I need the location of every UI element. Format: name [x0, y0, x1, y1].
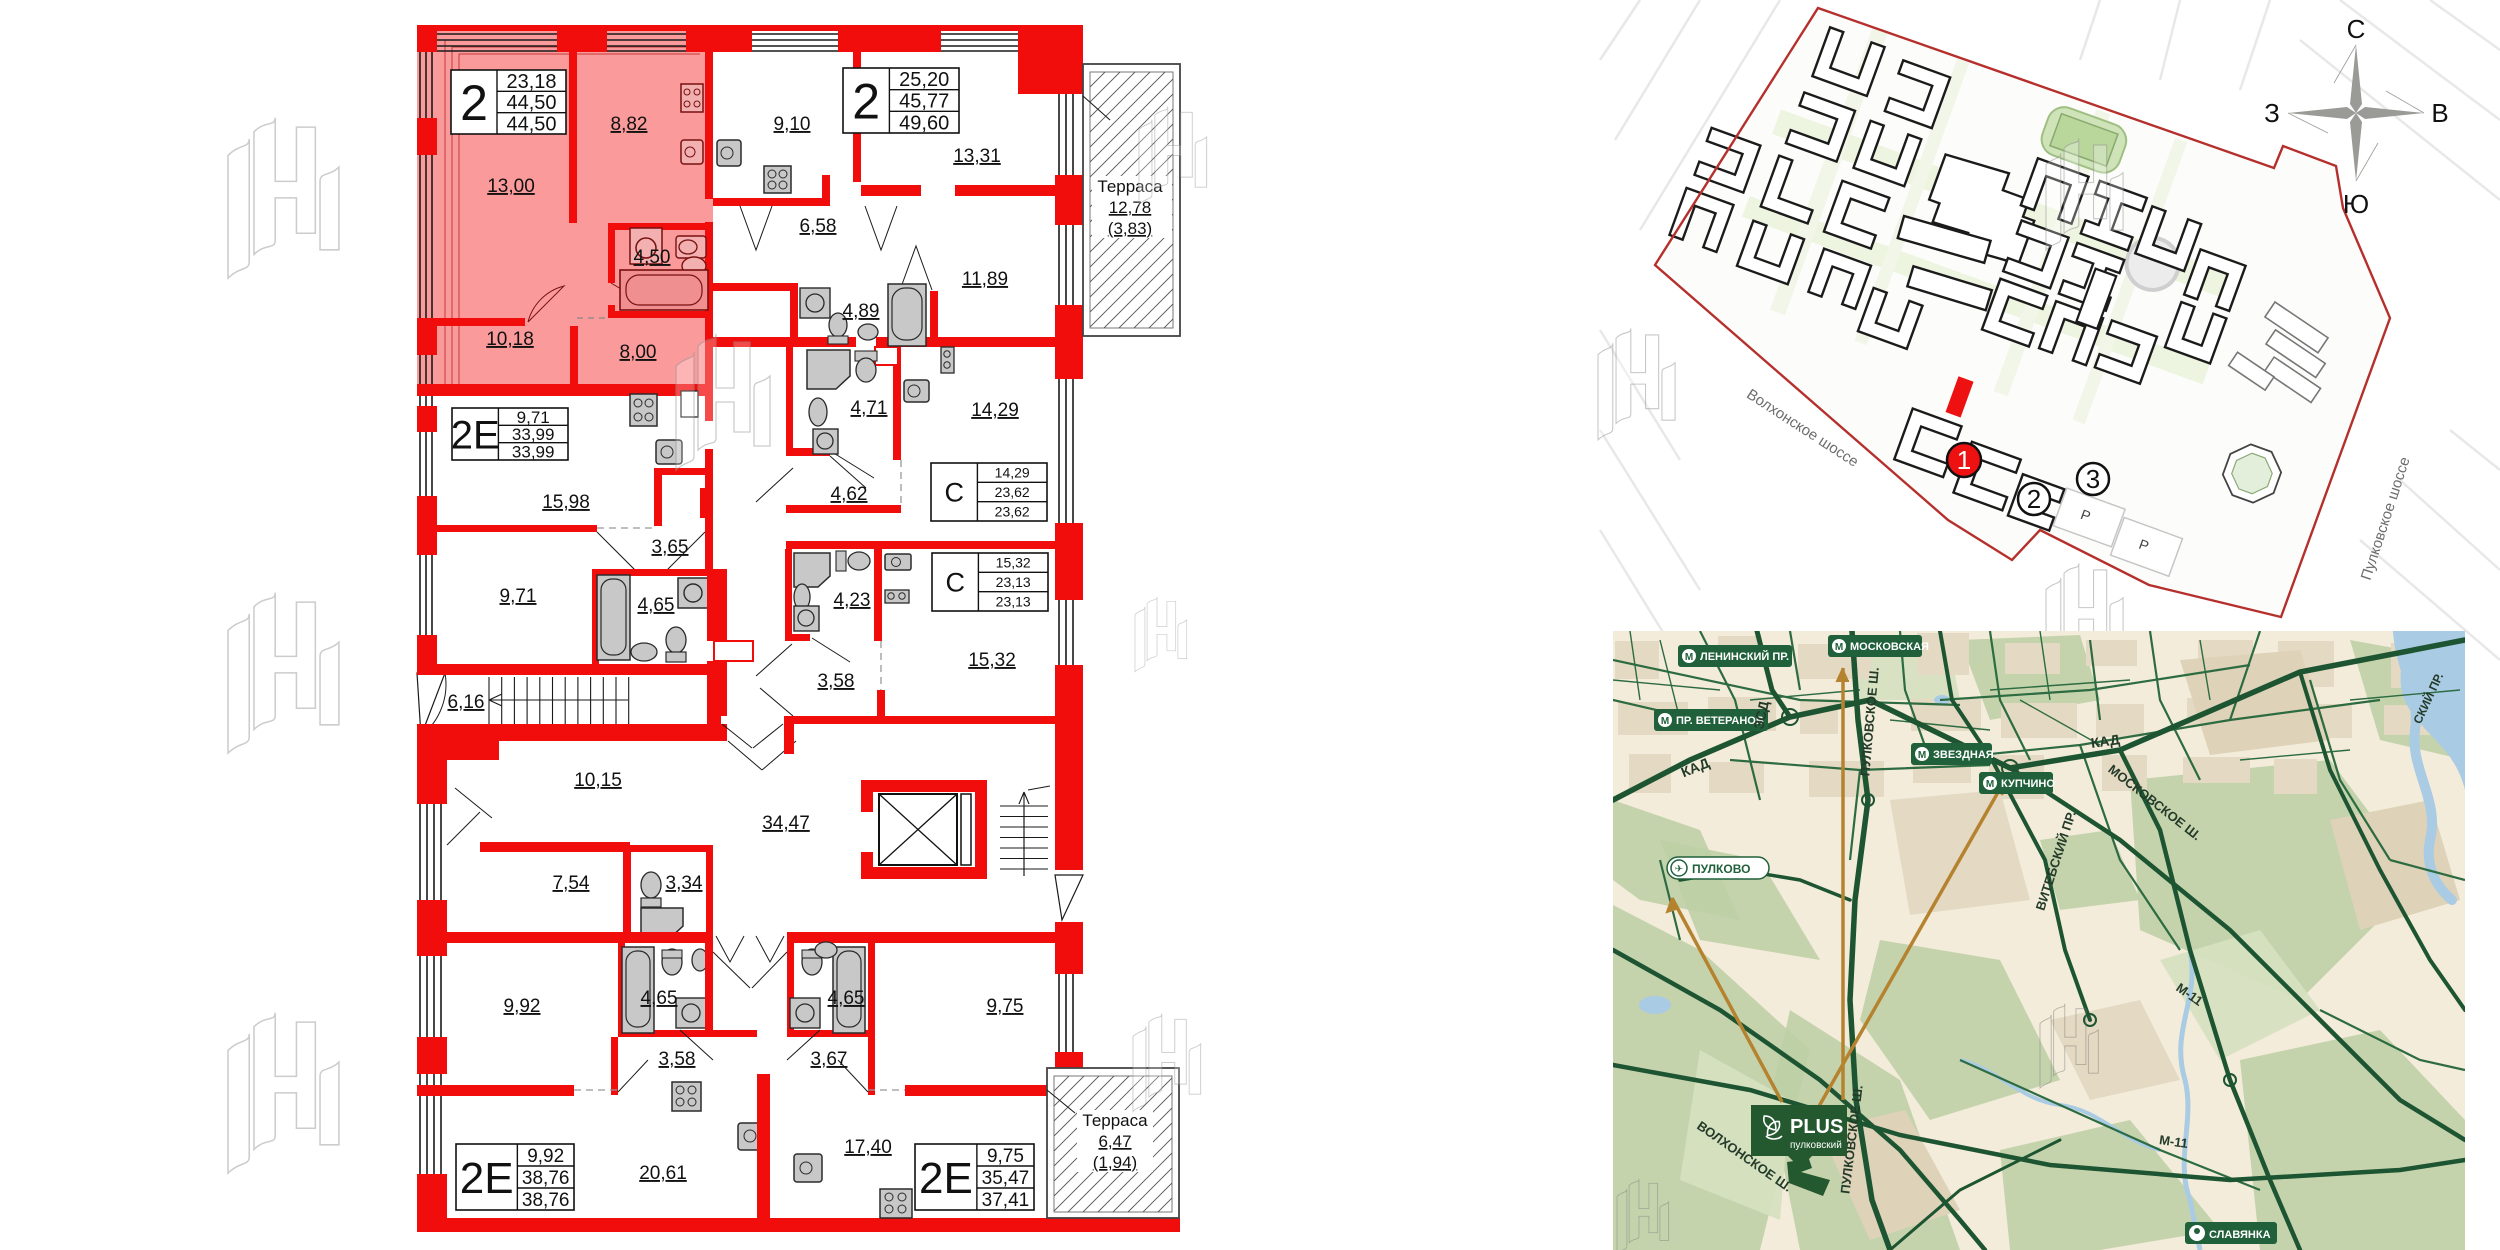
svg-text:2Е: 2Е [451, 413, 500, 457]
svg-text:14,29: 14,29 [995, 465, 1030, 481]
svg-text:6,16: 6,16 [448, 692, 485, 713]
svg-text:34,47: 34,47 [762, 813, 810, 834]
svg-text:2Е: 2Е [460, 1154, 514, 1203]
svg-text:35,47: 35,47 [982, 1168, 1030, 1189]
svg-text:4,71: 4,71 [851, 398, 888, 419]
svg-text:6,58: 6,58 [800, 216, 837, 237]
svg-text:ПУЛКОВО: ПУЛКОВО [1692, 862, 1750, 876]
svg-text:15,32: 15,32 [996, 555, 1031, 571]
svg-text:9,92: 9,92 [527, 1146, 564, 1167]
svg-text:23,13: 23,13 [996, 593, 1031, 609]
svg-text:49,60: 49,60 [899, 112, 949, 134]
svg-text:33,99: 33,99 [512, 442, 555, 461]
svg-text:15,98: 15,98 [542, 492, 590, 513]
svg-text:(1,94): (1,94) [1093, 1153, 1137, 1172]
svg-text:25,20: 25,20 [899, 69, 949, 91]
svg-text:4,65: 4,65 [641, 988, 678, 1009]
svg-text:9,75: 9,75 [987, 996, 1024, 1017]
svg-text:44,50: 44,50 [506, 92, 556, 114]
svg-text:3,67: 3,67 [811, 1049, 848, 1070]
svg-text:2: 2 [2027, 484, 2041, 514]
svg-text:3: 3 [2086, 464, 2100, 494]
svg-text:Терраса: Терраса [1097, 177, 1163, 196]
svg-text:23,13: 23,13 [996, 574, 1031, 590]
svg-text:4,65: 4,65 [828, 988, 865, 1009]
svg-text:4,65: 4,65 [638, 595, 675, 616]
svg-text:20,61: 20,61 [639, 1163, 687, 1184]
svg-text:ЗВЕЗДНАЯ: ЗВЕЗДНАЯ [1933, 749, 1994, 761]
svg-text:23,62: 23,62 [995, 484, 1030, 500]
svg-text:15,32: 15,32 [968, 650, 1016, 671]
svg-text:9,71: 9,71 [517, 408, 550, 427]
svg-text:3,65: 3,65 [652, 537, 689, 558]
svg-text:PLUS: PLUS [1790, 1116, 1843, 1138]
svg-text:38,76: 38,76 [522, 1168, 570, 1189]
svg-text:ЛЕНИНСКИЙ ПР.: ЛЕНИНСКИЙ ПР. [1700, 650, 1789, 663]
svg-text:33,99: 33,99 [512, 425, 555, 444]
svg-text:2: 2 [460, 75, 488, 131]
svg-text:КУПЧИНО: КУПЧИНО [2001, 778, 2055, 790]
svg-text:8,82: 8,82 [611, 114, 648, 135]
svg-text:М: М [1918, 750, 1926, 761]
svg-text:1: 1 [1957, 445, 1971, 475]
svg-text:М: М [1661, 716, 1669, 727]
svg-text:12,78: 12,78 [1109, 198, 1152, 217]
svg-text:13,31: 13,31 [953, 146, 1001, 167]
svg-text:С: С [944, 478, 964, 508]
svg-text:7,54: 7,54 [553, 873, 590, 894]
svg-text:9,75: 9,75 [987, 1146, 1024, 1167]
svg-text:Ю: Ю [2343, 189, 2369, 219]
svg-text:2Е: 2Е [919, 1154, 973, 1203]
svg-text:44,50: 44,50 [506, 114, 556, 136]
svg-text:38,76: 38,76 [522, 1190, 570, 1211]
svg-text:11,89: 11,89 [962, 269, 1008, 290]
svg-text:8,00: 8,00 [620, 342, 657, 363]
svg-text:В: В [2431, 98, 2448, 128]
svg-text:10,15: 10,15 [574, 770, 622, 791]
svg-text:Терраса: Терраса [1082, 1111, 1148, 1130]
svg-text:М: М [1986, 779, 1994, 790]
svg-text:23,62: 23,62 [995, 503, 1030, 519]
svg-text:14,29: 14,29 [971, 400, 1019, 421]
svg-text:45,77: 45,77 [899, 91, 949, 113]
svg-text:С: С [945, 568, 965, 598]
svg-text:10,18: 10,18 [486, 329, 534, 350]
svg-text:4,62: 4,62 [831, 484, 868, 505]
svg-text:З: З [2264, 98, 2280, 128]
svg-text:3,58: 3,58 [818, 671, 855, 692]
svg-text:17,40: 17,40 [844, 1137, 892, 1158]
svg-text:9,71: 9,71 [500, 586, 537, 607]
svg-text:✈: ✈ [1675, 864, 1683, 875]
svg-text:СЛАВЯНКА: СЛАВЯНКА [2209, 1229, 2271, 1241]
svg-text:23,18: 23,18 [506, 71, 556, 93]
svg-text:М: М [1835, 642, 1843, 653]
svg-text:13,00: 13,00 [487, 176, 535, 197]
svg-text:М: М [1685, 652, 1693, 663]
svg-text:6,47: 6,47 [1098, 1132, 1131, 1151]
svg-text:(3,83): (3,83) [1108, 219, 1152, 238]
svg-text:4,89: 4,89 [843, 301, 880, 322]
svg-text:МОСКОВСКАЯ: МОСКОВСКАЯ [1850, 641, 1929, 653]
svg-text:9,92: 9,92 [504, 996, 541, 1017]
svg-text:4,23: 4,23 [834, 590, 871, 611]
svg-text:4,50: 4,50 [634, 247, 671, 268]
svg-text:9,10: 9,10 [774, 114, 811, 135]
svg-text:пулковский: пулковский [1790, 1140, 1842, 1151]
svg-text:37,41: 37,41 [982, 1190, 1030, 1211]
svg-text:С: С [2347, 14, 2366, 44]
svg-text:3,34: 3,34 [666, 873, 703, 894]
svg-text:3,58: 3,58 [659, 1049, 696, 1070]
svg-text:2: 2 [852, 74, 880, 130]
